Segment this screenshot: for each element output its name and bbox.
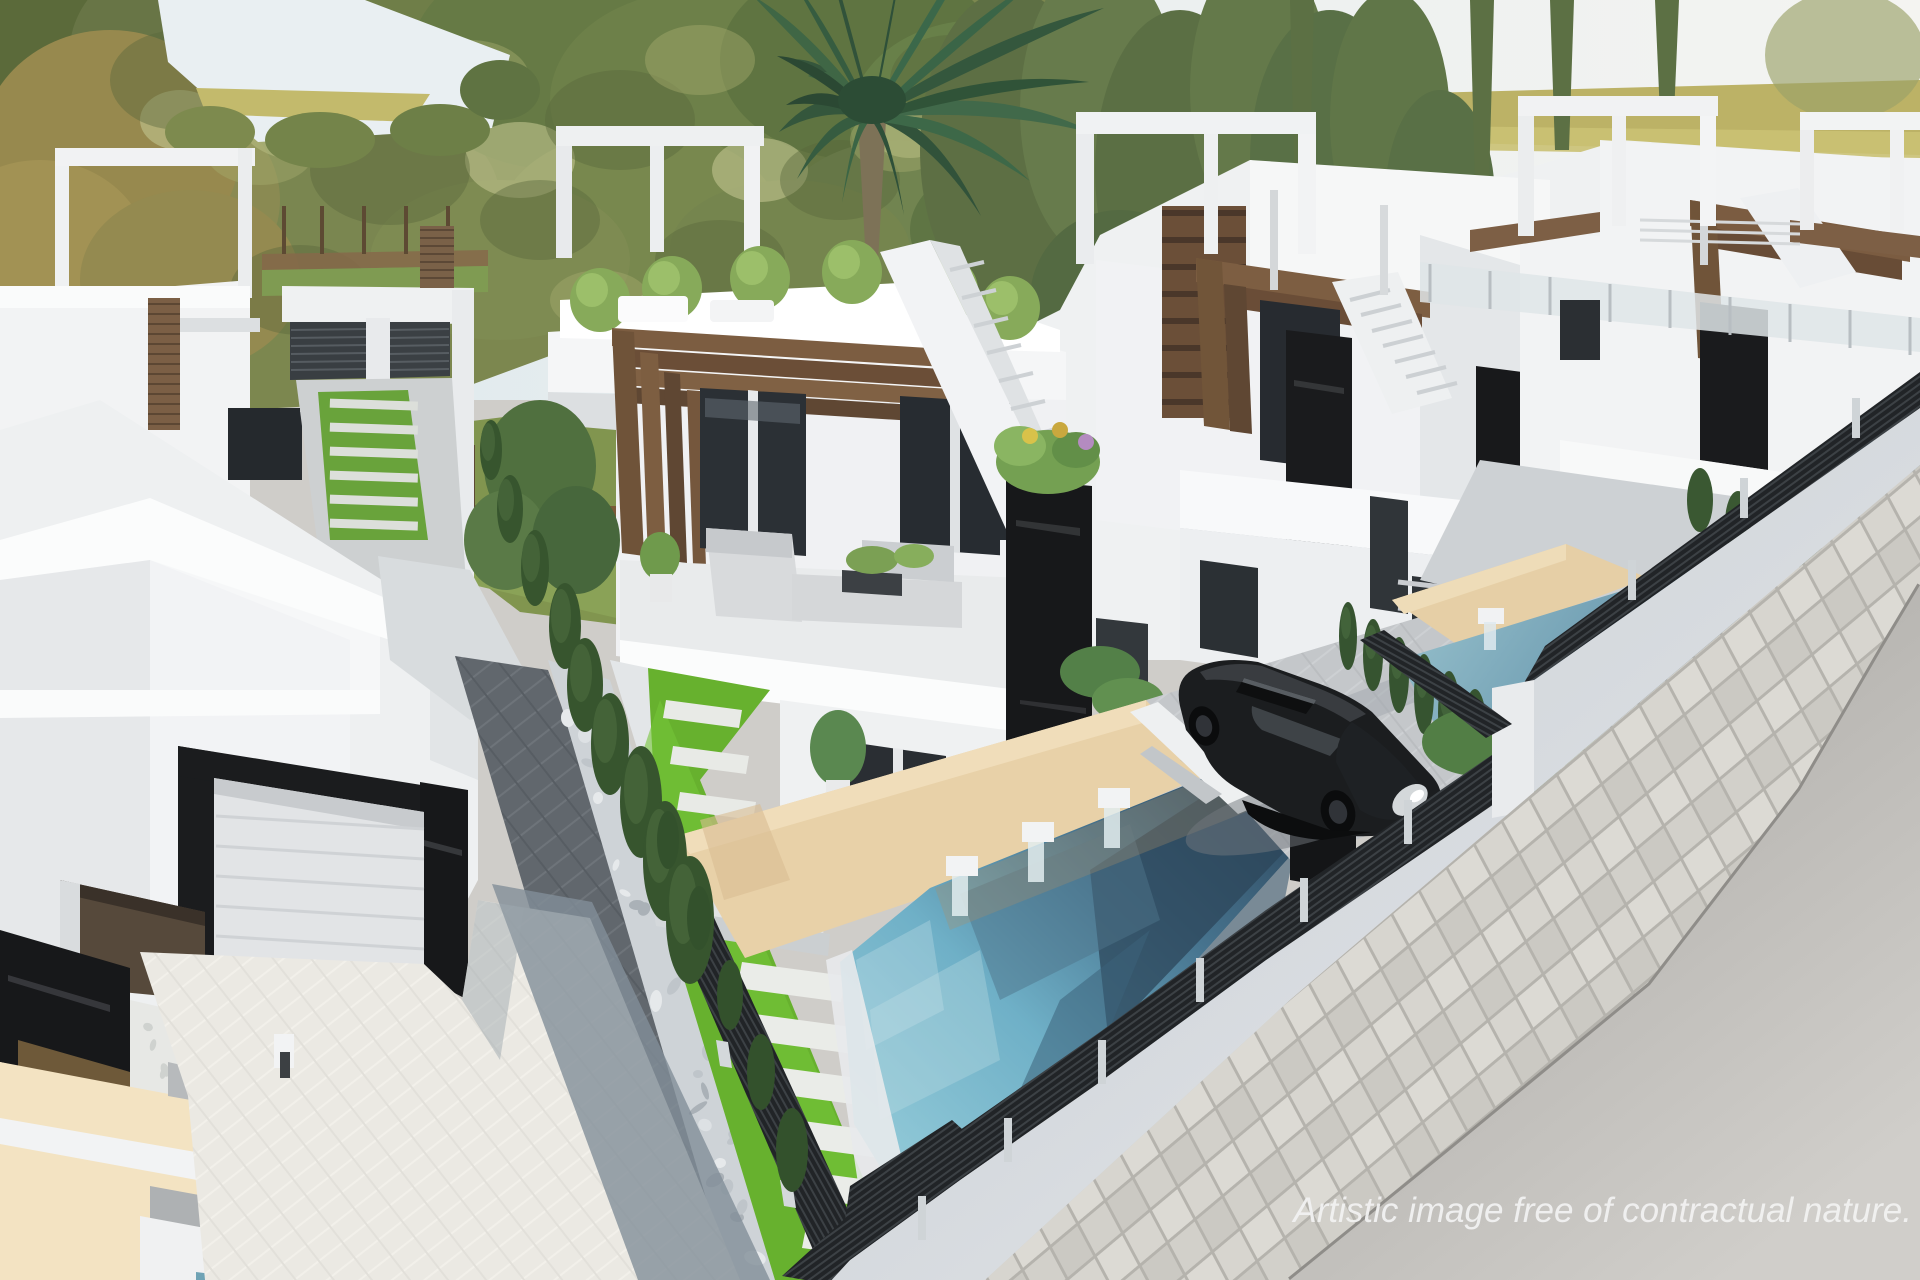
- svg-text:Artistic image free of contrac: Artistic image free of contractual natur…: [1291, 1191, 1912, 1230]
